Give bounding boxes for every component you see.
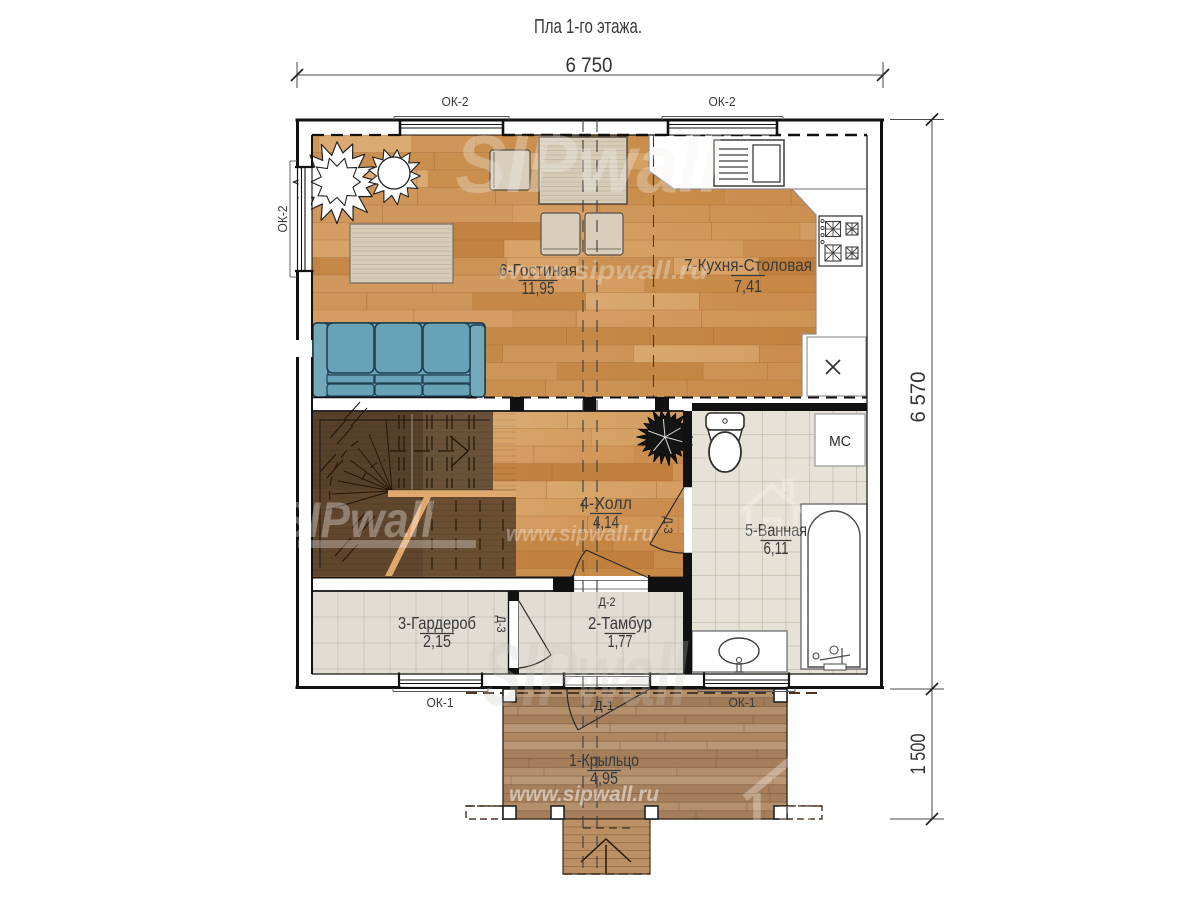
svg-text:2,15: 2,15 [423,631,451,651]
svg-text:6 570: 6 570 [907,372,930,423]
svg-text:www.sipwall.ru: www.sipwall.ru [498,255,708,285]
svg-text:ОК-1: ОК-1 [729,695,756,710]
svg-text:6 750: 6 750 [566,54,613,77]
svg-text:ОК-2: ОК-2 [275,206,290,233]
svg-text:1 500: 1 500 [907,734,930,775]
svg-text:SIPwall: SIPwall [279,492,435,548]
svg-text:7,41: 7,41 [734,276,762,296]
svg-text:SIPwall: SIPwall [456,119,723,210]
svg-text:SIPwall: SIPwall [483,625,689,724]
svg-text:4-Холл: 4-Холл [580,493,632,513]
svg-text:www.sipwall.ru: www.sipwall.ru [506,521,655,546]
svg-text:ОК-1: ОК-1 [427,695,454,710]
svg-text:Д-3: Д-3 [661,517,675,534]
svg-text:www.sipwall.ru: www.sipwall.ru [509,783,659,806]
svg-text:МС: МС [829,433,851,450]
svg-text:Пла 1-го этажа.: Пла 1-го этажа. [534,16,642,38]
svg-text:3-Гардероб: 3-Гардероб [398,613,476,633]
svg-text:ОК-2: ОК-2 [709,94,736,109]
svg-text:Д-2: Д-2 [599,595,616,609]
svg-text:6,11: 6,11 [764,538,789,558]
svg-text:ОК-2: ОК-2 [442,94,469,109]
svg-text:1-Крыльцо: 1-Крыльцо [569,750,639,770]
